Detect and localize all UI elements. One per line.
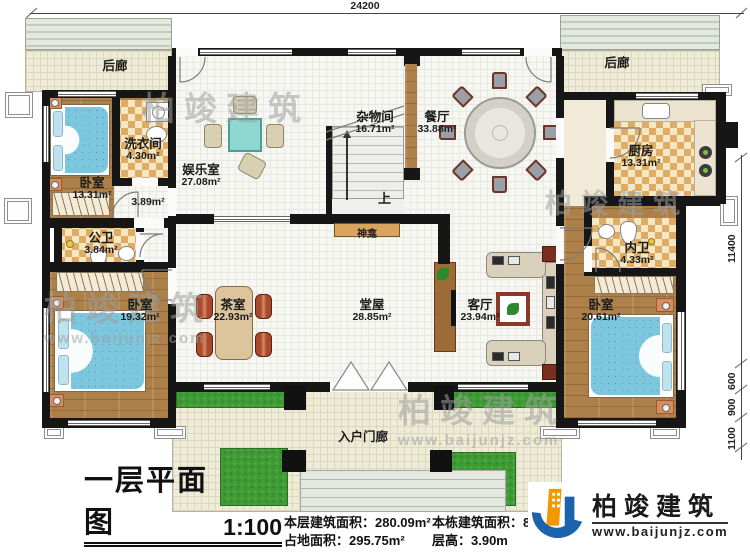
door-opening	[556, 118, 564, 158]
room-name: 卧室	[52, 176, 132, 190]
bed	[50, 104, 110, 176]
logo-name: 柏竣建筑	[592, 494, 728, 521]
wall	[584, 196, 720, 206]
stair-arrow	[346, 138, 348, 200]
room-name: 洗衣间	[103, 137, 183, 151]
nightstand	[656, 400, 674, 414]
room-name: 茶室	[193, 298, 273, 312]
dimension-line-top	[30, 13, 744, 14]
door-opening	[132, 178, 158, 186]
grass-patch	[220, 448, 288, 506]
wardrobe	[594, 276, 674, 294]
room-area: 33.88m²	[397, 124, 477, 136]
porch-pillar	[282, 450, 306, 472]
sofa-cushion	[546, 316, 555, 329]
room-label-kitchen: 厨房13.31m²	[601, 144, 681, 170]
nightstand	[48, 394, 64, 407]
room-label-main-hall: 堂屋28.85m²	[332, 298, 412, 324]
floor-area-text: 本层建筑面积：280.09m²	[284, 514, 431, 532]
stats-column-1: 本层建筑面积：280.09m² 占地面积：295.75m²	[284, 514, 431, 550]
room-label-tea-room: 茶室22.93m²	[193, 298, 273, 324]
wall	[584, 268, 678, 276]
room-label-rear-porch-right: 后廊	[577, 56, 657, 70]
floor-plan: 24200 11400 600 900 1100	[0, 0, 750, 553]
window	[462, 49, 520, 55]
room-area: 3.84m²	[61, 245, 141, 257]
logo-text-block: 柏竣建筑 www.baijunjz.com	[592, 494, 728, 539]
shrine: 神龛	[334, 223, 400, 237]
door-opening	[584, 246, 592, 272]
grass-strip	[452, 390, 560, 408]
room-name: 公卫	[61, 231, 141, 245]
window	[58, 91, 116, 97]
door-opening	[524, 48, 552, 56]
room-name: 客厅	[440, 298, 520, 312]
window	[578, 420, 656, 426]
sofa-cushion	[546, 296, 555, 309]
room-label-bedroom-bl: 卧室19.32m²	[100, 298, 180, 324]
stairs-up-label: 上	[378, 188, 391, 207]
washing-machine	[146, 102, 169, 122]
room-label-living-room: 客厅23.94m²	[440, 298, 520, 324]
nightstand	[656, 298, 674, 312]
window	[348, 49, 396, 55]
ground-area-text: 占地面积：295.75m²	[284, 532, 431, 550]
nightstand	[48, 296, 64, 309]
room-label-entertainment: 娱乐室27.08m²	[161, 163, 241, 189]
window	[677, 312, 685, 390]
room-area: 13.31m²	[601, 158, 681, 170]
room-name: 卧室	[561, 298, 641, 312]
sofa-cushion	[492, 256, 504, 265]
room-label-public-bath: 公卫3.84m²	[61, 231, 141, 257]
porch-pillar	[284, 386, 306, 410]
logo-url: www.baijunjz.com	[592, 522, 728, 539]
chair	[266, 124, 284, 148]
window	[43, 308, 49, 392]
chair	[233, 96, 257, 114]
game-table	[228, 118, 262, 152]
chair	[204, 124, 222, 148]
tea-chair	[196, 332, 213, 357]
stove-burner	[699, 146, 712, 159]
dimension-right-sub: 900	[726, 392, 738, 416]
window	[458, 384, 528, 390]
dimension-right: 11400	[726, 215, 738, 263]
company-logo: 柏竣建筑 www.baijunjz.com	[528, 482, 746, 550]
bed	[588, 314, 674, 398]
room-area: 3.89m²	[108, 197, 188, 209]
sofa-cushion	[508, 256, 520, 265]
room-label-dining: 餐厅33.88m²	[397, 110, 477, 136]
room-name: 娱乐室	[161, 163, 241, 177]
room-area: 4.30m²	[103, 151, 183, 163]
sofa-cushion	[492, 352, 504, 361]
tea-chair	[255, 332, 272, 357]
room-area: 22.93m²	[193, 312, 273, 324]
room-name: 餐厅	[397, 110, 477, 124]
scale-label: 1:100	[223, 514, 282, 541]
room-name: 卧室	[100, 298, 180, 312]
door-opening	[556, 226, 564, 264]
room-name: 后廊	[75, 59, 155, 73]
wall	[716, 92, 726, 204]
wall	[326, 126, 332, 218]
window	[204, 384, 270, 390]
door-opening	[134, 218, 164, 228]
room-name: 后廊	[577, 56, 657, 70]
wall	[438, 214, 450, 264]
window-sill	[4, 198, 32, 224]
wardrobe	[56, 272, 144, 292]
dimension-right-sub: 1100	[726, 420, 738, 450]
room-name: 堂屋	[332, 298, 412, 312]
room-area: 20.61m²	[561, 312, 641, 324]
room-area: 4.33m²	[597, 255, 677, 267]
door-opening	[176, 48, 198, 56]
rear-porch-right-roof	[560, 15, 720, 50]
room-name: 内卫	[597, 241, 677, 255]
entry-steps	[300, 470, 506, 512]
balustrade	[214, 216, 290, 222]
room-label-entry-porch: 入户门廊	[313, 430, 413, 444]
room-label-inner-bath: 内卫4.33m²	[597, 241, 677, 267]
room-label-laundry: 洗衣间4.30m²	[103, 137, 183, 163]
window	[43, 106, 49, 162]
dimension-line-right	[741, 155, 742, 460]
room-area: 19.32m²	[100, 312, 180, 324]
window-sill	[5, 92, 33, 118]
plant	[437, 268, 449, 280]
grass-strip	[176, 390, 288, 408]
rear-porch-left-roof	[25, 18, 172, 50]
window	[68, 420, 150, 426]
dining-chair	[492, 72, 507, 89]
porch-pillar	[434, 386, 454, 410]
stove-burner	[699, 164, 712, 177]
kitchen-sink	[642, 103, 670, 119]
wall-cap	[404, 168, 420, 180]
shrine-label: 神龛	[357, 229, 377, 240]
logo-icon	[528, 485, 586, 547]
dimension-top: 24200	[330, 0, 400, 12]
page-title: 一层平面图	[84, 457, 213, 541]
entry-door-opening	[330, 382, 408, 392]
room-label-hallway: 3.89m²	[108, 197, 188, 209]
sofa-cushion	[508, 352, 520, 361]
window	[200, 49, 292, 55]
dimension-right-sub: 600	[726, 366, 738, 390]
room-area: 27.08m²	[161, 177, 241, 189]
bath-sink	[598, 224, 615, 239]
room-label-bedroom-br: 卧室20.61m²	[561, 298, 641, 324]
porch-pillar	[430, 450, 452, 472]
room-name: 厨房	[601, 144, 681, 158]
window	[636, 93, 698, 99]
room-name: 入户门廊	[313, 430, 413, 444]
room-area: 28.85m²	[332, 312, 412, 324]
wall	[168, 56, 176, 426]
room-area: 23.94m²	[440, 312, 520, 324]
wall	[42, 262, 176, 272]
sofa-cushion	[546, 276, 555, 289]
dining-chair	[492, 176, 507, 193]
title-block: 一层平面图 1:100	[84, 511, 282, 547]
room-label-rear-porch-left: 后廊	[75, 59, 155, 73]
